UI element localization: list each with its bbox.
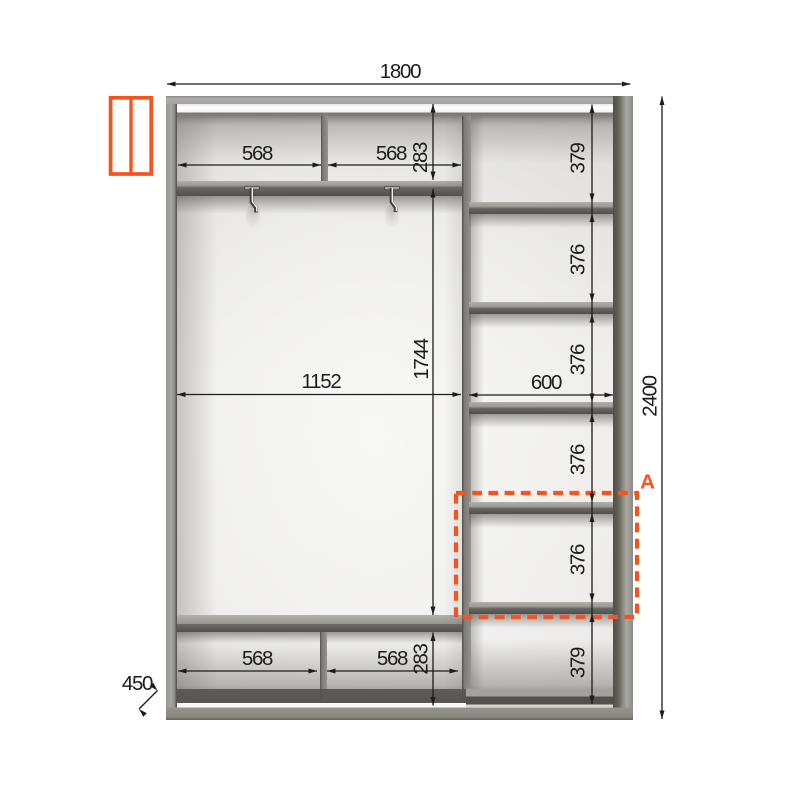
svg-text:283: 283	[410, 643, 433, 674]
svg-text:376: 376	[567, 544, 590, 575]
svg-text:376: 376	[567, 244, 590, 275]
svg-text:376: 376	[567, 344, 590, 375]
svg-text:568: 568	[377, 647, 408, 670]
svg-text:600: 600	[531, 371, 562, 394]
svg-text:A: A	[640, 471, 655, 494]
svg-text:568: 568	[376, 142, 407, 165]
svg-text:283: 283	[409, 142, 432, 173]
svg-text:568: 568	[242, 142, 273, 165]
svg-text:2400: 2400	[639, 375, 662, 416]
svg-text:1744: 1744	[410, 338, 433, 379]
svg-text:450: 450	[122, 672, 153, 695]
svg-text:568: 568	[242, 647, 273, 670]
svg-text:379: 379	[567, 142, 590, 173]
svg-text:379: 379	[567, 647, 590, 678]
svg-text:376: 376	[567, 444, 590, 475]
svg-text:1152: 1152	[302, 370, 342, 393]
svg-text:1800: 1800	[380, 60, 421, 83]
